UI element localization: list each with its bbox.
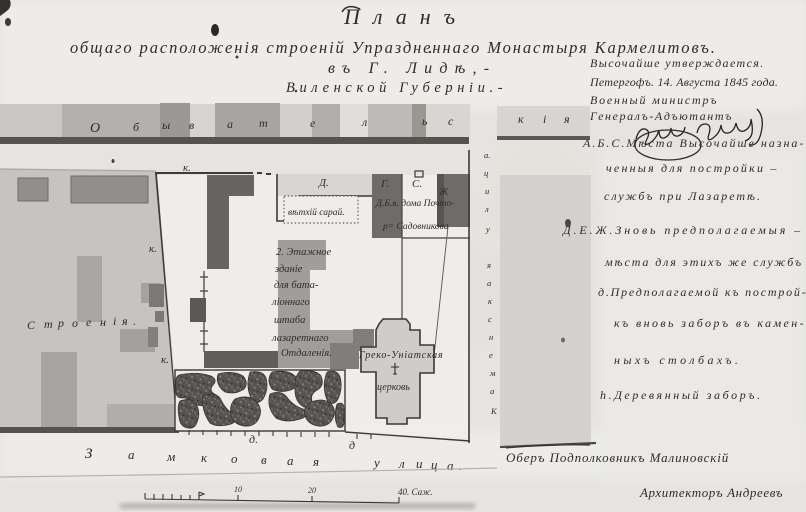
svg-text:е: е	[86, 315, 92, 329]
svg-text:З: З	[85, 446, 93, 462]
svg-text:і: і	[543, 112, 546, 126]
svg-text:Петергофъ. 14. Августа 1845 го: Петергофъ. 14. Августа 1845 года.	[589, 75, 778, 89]
svg-text:къ вновь заборъ въ камен-: къ вновь заборъ въ камен-	[614, 316, 806, 330]
svg-text:в: в	[261, 452, 267, 467]
svg-text:въ Г. Лидѣ,-: въ Г. Лидѣ,-	[328, 60, 496, 77]
svg-text:л: л	[484, 204, 489, 214]
svg-text:я: я	[563, 112, 570, 126]
svg-text:40. Саж.: 40. Саж.	[398, 487, 433, 497]
svg-text:Генералъ-Адъютантъ: Генералъ-Адъютантъ	[589, 109, 733, 123]
svg-text:т: т	[259, 116, 268, 130]
svg-text:общаго расположенія строеній У: общаго расположенія строеній Упраздненна…	[70, 38, 717, 57]
svg-text:с: с	[488, 314, 492, 324]
svg-text:я: я	[312, 454, 319, 469]
svg-text:а.: а.	[484, 150, 490, 160]
svg-text:т: т	[44, 317, 53, 331]
svg-text:л: л	[398, 456, 405, 471]
svg-text:С.: С.	[412, 178, 422, 190]
svg-text:2. Этажное: 2. Этажное	[276, 247, 332, 258]
svg-text:ь: ь	[422, 114, 428, 128]
svg-text:у: у	[485, 224, 490, 234]
svg-text:с: с	[448, 114, 454, 128]
svg-text:А.Б.С.Мѣста Высочайше назна-: А.Б.С.Мѣста Высочайше назна-	[582, 136, 805, 150]
svg-text:.: .	[133, 314, 136, 328]
svg-text:м: м	[489, 368, 496, 378]
svg-text:а: а	[447, 458, 454, 473]
svg-text:Военный министръ: Военный министръ	[590, 93, 718, 107]
svg-text:о: о	[72, 316, 78, 330]
svg-text:Д.Б.в. дома Почто-: Д.Б.в. дома Почто-	[375, 198, 454, 209]
svg-text:Планъ: Планъ	[343, 4, 468, 29]
svg-text:в: в	[189, 118, 194, 132]
svg-text:д.Предполагаемой къ построй-: д.Предполагаемой къ построй-	[598, 285, 806, 299]
svg-text:к: к	[518, 112, 524, 126]
svg-text:м: м	[166, 449, 175, 464]
svg-text:к.: к.	[183, 162, 191, 174]
svg-text:10: 10	[234, 485, 242, 494]
svg-text:ц: ц	[484, 168, 488, 178]
svg-text:н: н	[489, 332, 493, 342]
svg-text:а: а	[487, 278, 491, 288]
svg-text:а: а	[128, 447, 135, 462]
svg-text:ченныя для постройки –: ченныя для постройки –	[606, 161, 779, 175]
svg-text:20: 20	[308, 486, 316, 495]
svg-text:.: .	[459, 458, 462, 473]
svg-text:д.: д.	[249, 432, 258, 446]
svg-text:і: і	[113, 314, 116, 328]
svg-text:для бата-: для бата-	[274, 280, 319, 291]
svg-text:Г.: Г.	[380, 178, 389, 190]
svg-text:Оберъ Подполковникъ Малиновскі: Оберъ Подполковникъ Малиновскій	[506, 450, 729, 465]
svg-text:службъ при Лазаретѣ.: службъ при Лазаретѣ.	[604, 189, 762, 203]
svg-text:штаба: штаба	[274, 315, 305, 326]
svg-text:церковь: церковь	[377, 382, 410, 393]
svg-text:к.: к.	[149, 243, 157, 255]
svg-text:Греко-Уніатская: Греко-Уніатская	[358, 350, 443, 361]
svg-text:к.: к.	[161, 354, 169, 366]
svg-text:Ж: Ж	[438, 187, 449, 198]
svg-text:и: и	[485, 186, 489, 196]
svg-text:Высочайше утверждается.: Высочайше утверждается.	[590, 56, 765, 70]
svg-text:Архитекторъ Андреевъ: Архитекторъ Андреевъ	[639, 485, 783, 500]
svg-text:а: а	[287, 453, 294, 468]
svg-text:С: С	[27, 318, 36, 332]
svg-text:о: о	[231, 451, 238, 466]
svg-text:вѣтхій сарай.: вѣтхій сарай.	[288, 207, 345, 218]
svg-text:р= Садовникова: р= Садовникова	[382, 221, 449, 232]
svg-text:Виленской Губерніи.-: Виленской Губерніи.-	[286, 80, 507, 96]
svg-text:зданіе: зданіе	[274, 264, 303, 275]
svg-text:я: я	[486, 260, 491, 270]
svg-text:Д.: Д.	[318, 177, 329, 189]
svg-text:е: е	[489, 350, 493, 360]
svg-text:а: а	[490, 386, 494, 396]
svg-text:Отдаленія.: Отдаленія.	[281, 348, 332, 359]
svg-text:н: н	[100, 315, 106, 329]
svg-text:б: б	[133, 120, 140, 134]
svg-text:е: е	[310, 116, 316, 130]
svg-text:д: д	[349, 438, 355, 452]
svg-text:мѣста для этихъ же службъ: мѣста для этихъ же службъ	[604, 255, 803, 269]
svg-text:h.Деревянный заборъ.: h.Деревянный заборъ.	[600, 388, 763, 402]
svg-text:у: у	[372, 455, 380, 470]
svg-text:лазаретнаго: лазаретнаго	[271, 333, 328, 344]
svg-text:к: к	[201, 450, 208, 465]
svg-text:и: и	[416, 456, 423, 471]
svg-text:я: я	[121, 314, 128, 328]
svg-text:р: р	[57, 316, 64, 330]
svg-text:Д.Е.Ж.Зновь предполагаемыя –: Д.Е.Ж.Зновь предполагаемыя –	[562, 223, 803, 237]
svg-text:О: О	[90, 121, 100, 136]
svg-text:а: а	[227, 117, 233, 131]
svg-text:ліоннаго: ліоннаго	[271, 297, 310, 308]
svg-text:ныхъ столбахъ.: ныхъ столбахъ.	[614, 353, 741, 367]
svg-text:ы: ы	[162, 118, 170, 132]
svg-text:л: л	[361, 115, 367, 129]
